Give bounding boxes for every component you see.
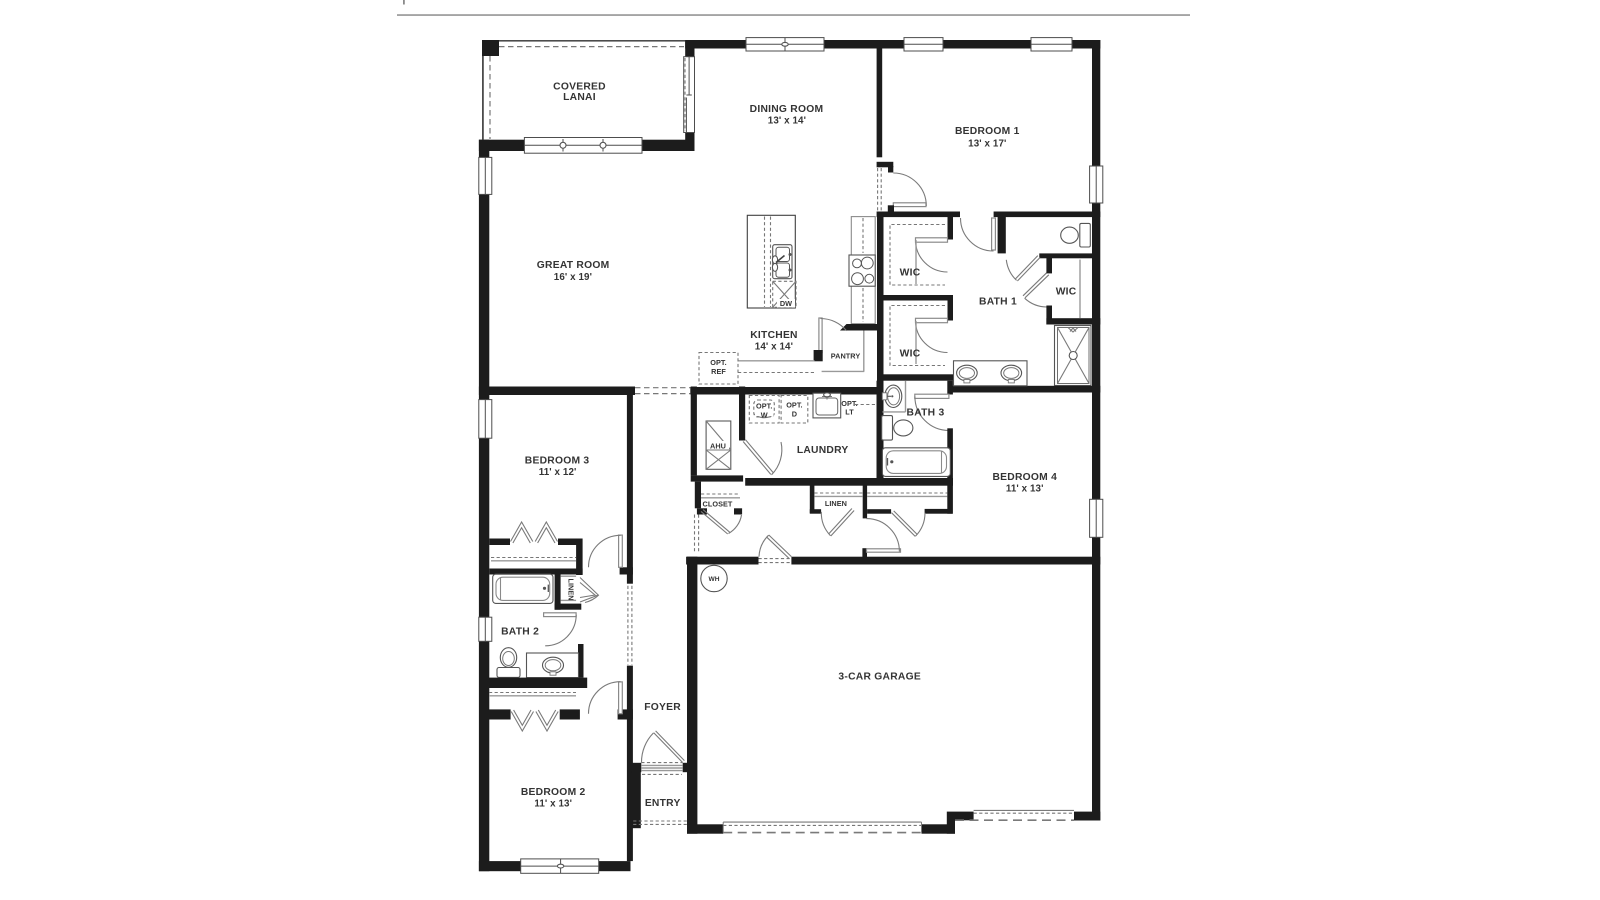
svg-text:REF: REF [711, 367, 726, 376]
svg-text:LINEN: LINEN [567, 578, 576, 600]
svg-text:BATH 1: BATH 1 [979, 296, 1017, 307]
svg-text:BEDROOM 4: BEDROOM 4 [992, 472, 1057, 483]
svg-text:11' x 13': 11' x 13' [1006, 484, 1044, 495]
svg-text:D: D [792, 410, 797, 419]
svg-text:KITCHEN: KITCHEN [750, 330, 798, 341]
svg-text:BEDROOM 2: BEDROOM 2 [521, 787, 586, 798]
svg-text:OPT.: OPT. [786, 401, 802, 410]
svg-text:PANTRY: PANTRY [831, 352, 861, 361]
svg-text:DINING ROOM: DINING ROOM [750, 104, 824, 115]
svg-text:LANAI: LANAI [563, 92, 596, 103]
svg-text:BEDROOM 1: BEDROOM 1 [955, 126, 1020, 137]
svg-text:FOYER: FOYER [644, 702, 681, 713]
svg-text:OPT.: OPT. [756, 402, 772, 411]
svg-text:BATH 3: BATH 3 [907, 408, 945, 419]
svg-text:LINEN: LINEN [825, 499, 847, 508]
svg-text:WIC: WIC [1056, 287, 1077, 298]
svg-text:LAUNDRY: LAUNDRY [797, 445, 849, 456]
svg-text:WIC: WIC [900, 267, 921, 278]
svg-text:14' x 14': 14' x 14' [755, 342, 793, 353]
svg-text:CLOSET: CLOSET [703, 500, 733, 509]
svg-text:GREAT ROOM: GREAT ROOM [537, 260, 610, 271]
svg-text:W: W [761, 411, 768, 420]
svg-text:WIC: WIC [900, 349, 921, 360]
svg-text:WH: WH [709, 576, 720, 583]
svg-text:11' x 13': 11' x 13' [534, 799, 572, 810]
svg-text:ENTRY: ENTRY [645, 798, 681, 809]
svg-text:LT: LT [845, 408, 854, 417]
svg-text:AHU: AHU [710, 441, 726, 450]
svg-text:16' x 19': 16' x 19' [554, 272, 592, 283]
svg-text:BEDROOM 3: BEDROOM 3 [525, 455, 590, 466]
svg-text:DW: DW [780, 299, 792, 308]
svg-text:OPT.: OPT. [710, 358, 726, 367]
svg-text:13' x 17': 13' x 17' [968, 139, 1006, 150]
svg-text:BATH 2: BATH 2 [501, 626, 539, 637]
svg-text:11' x 12': 11' x 12' [539, 467, 577, 478]
svg-text:13' x 14': 13' x 14' [768, 115, 806, 126]
svg-text:3-CAR GARAGE: 3-CAR GARAGE [838, 671, 921, 682]
